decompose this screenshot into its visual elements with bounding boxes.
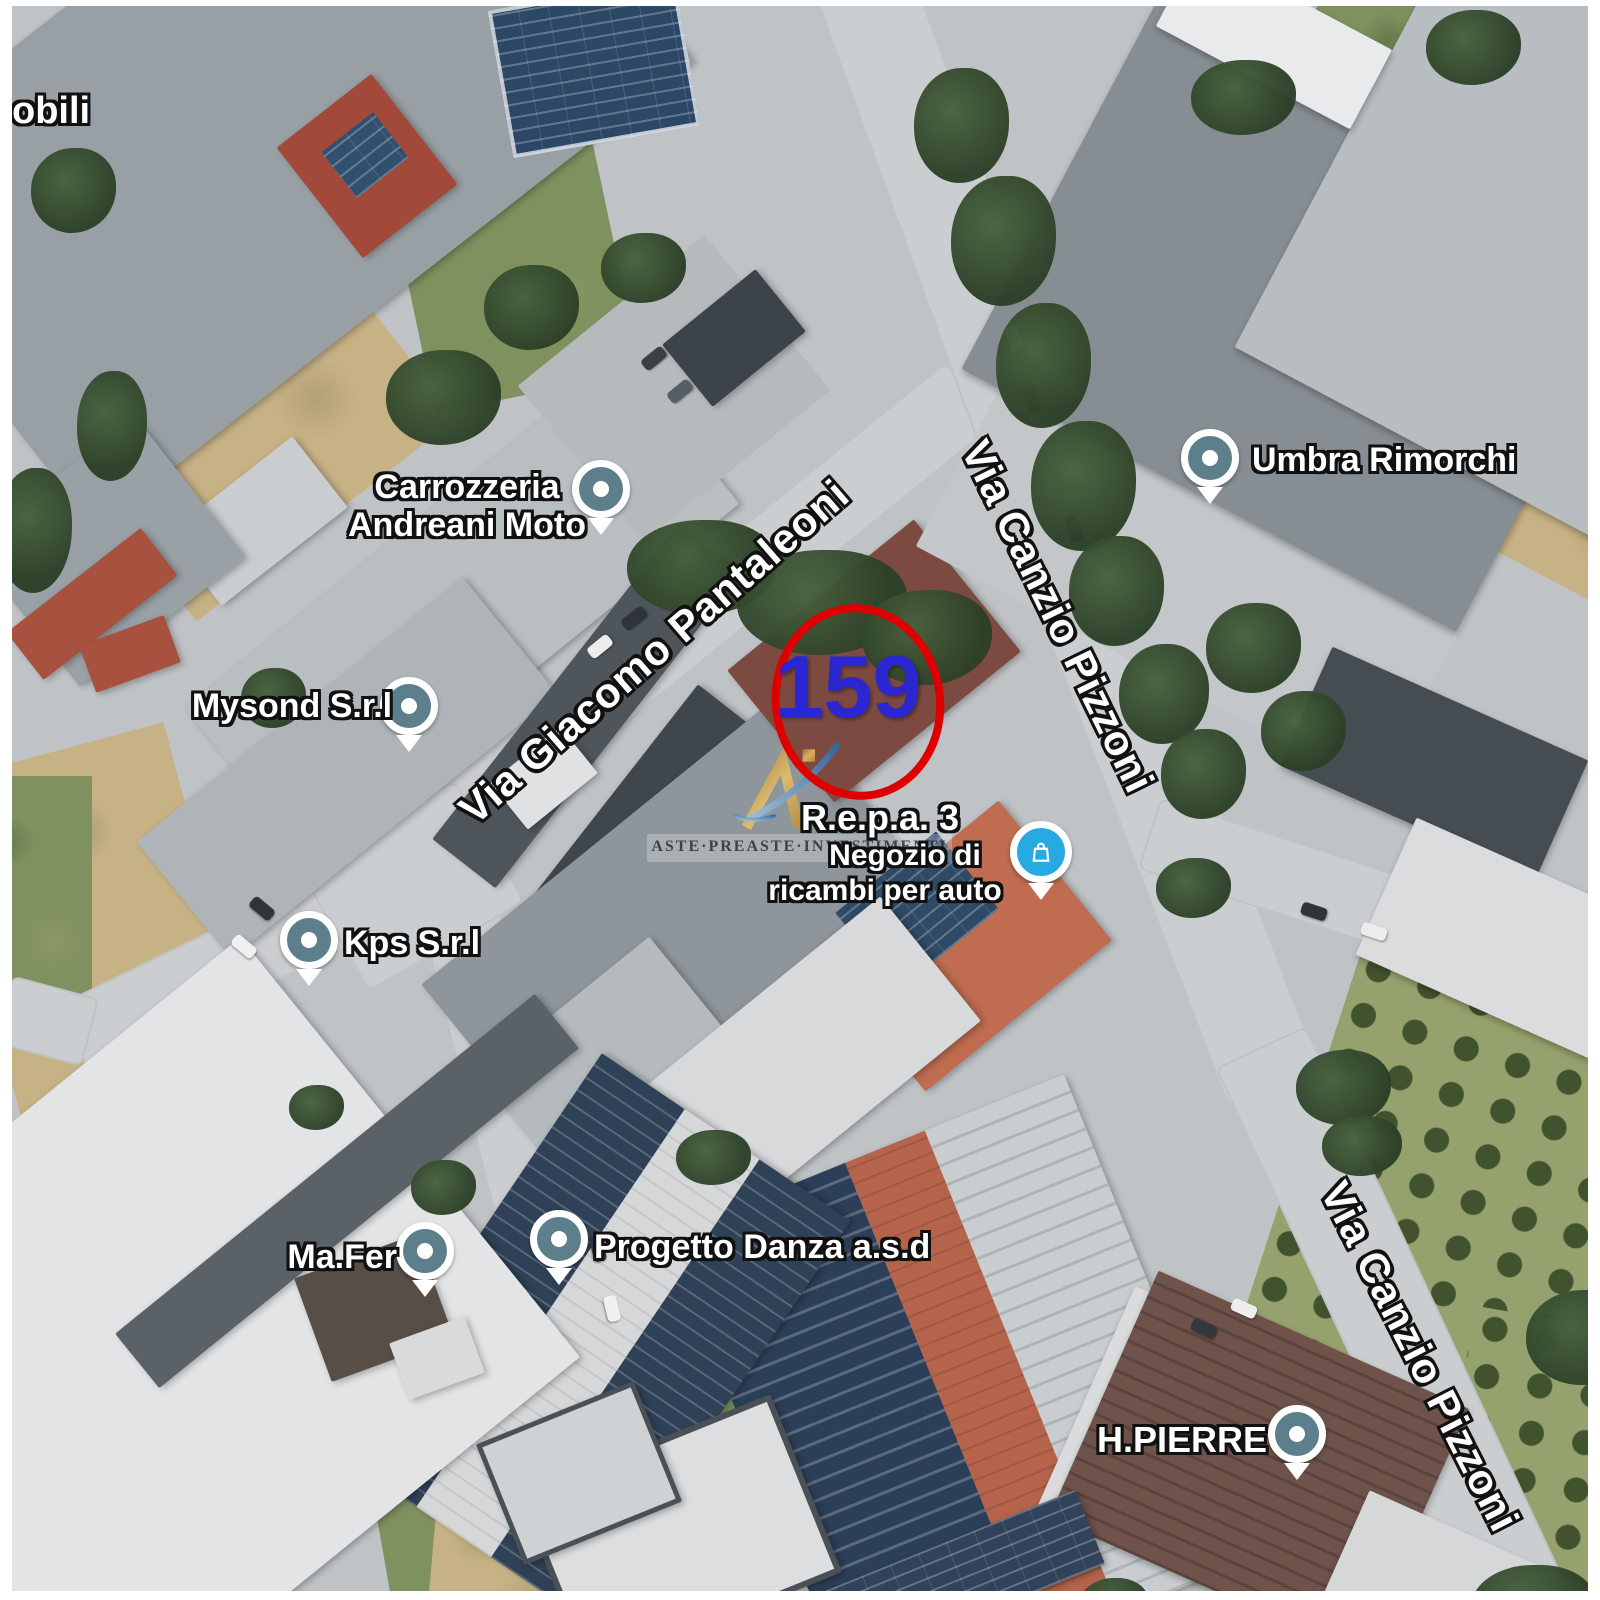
- poi-label-progetto: Progetto Danza a.s.d: [594, 1228, 1024, 1266]
- solar-panel-roof: [487, 6, 700, 158]
- tree-cluster: [386, 350, 501, 445]
- poi-label-mysond: Mysond S.r.l: [162, 687, 422, 725]
- poi-label-umbra: Umbra Rimorchi: [1252, 441, 1588, 479]
- poi-label-repa-sub2: ricambi per auto: [735, 874, 1035, 908]
- map-pin-kps[interactable]: [280, 911, 338, 969]
- map-pin-progetto[interactable]: [530, 1210, 588, 1268]
- tree-cluster: [914, 68, 1009, 183]
- poi-label-partial: obili: [12, 90, 90, 133]
- poi-label-line: Andreani Moto: [332, 506, 602, 544]
- map-pin-mafer[interactable]: [396, 1222, 454, 1280]
- highlight-number: 159: [758, 636, 938, 738]
- tree-cluster: [411, 1160, 476, 1215]
- poi-label-kps: Kps S.r.l: [344, 924, 544, 962]
- poi-label-line: Carrozzeria: [332, 468, 602, 506]
- poi-label-hpierre: H.PIERRE: [1057, 1420, 1267, 1460]
- poi-label-repa-sub1: Negozio di: [775, 839, 1035, 873]
- map-pin-hpierre[interactable]: [1268, 1405, 1326, 1463]
- poi-label-repa-title: R.e.p.a. 3: [750, 798, 1010, 838]
- poi-label-carrozzeria: Carrozzeria Andreani Moto: [332, 468, 602, 544]
- grass-field: [12, 776, 92, 996]
- poi-label-mafer: Ma.Fer: [257, 1238, 397, 1276]
- map-pin-umbra[interactable]: [1181, 429, 1239, 487]
- map-screenshot: ASTE·PREASTE·INVESTIMENTI 159 obili Carr…: [0, 0, 1600, 1600]
- satellite-map-canvas[interactable]: ASTE·PREASTE·INVESTIMENTI 159 obili Carr…: [12, 6, 1588, 1591]
